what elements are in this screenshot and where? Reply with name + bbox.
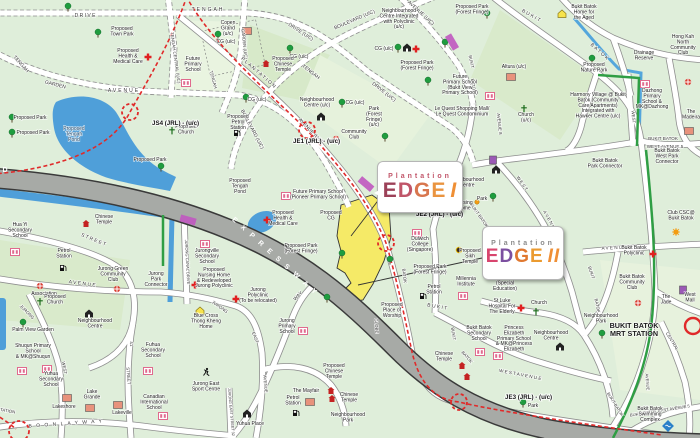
poi-label: ProposedPlace ofWorship <box>381 302 403 319</box>
poi-label: Proposed Park(Forest Fringe) <box>455 4 489 15</box>
poi-label: MillenniaInstitute <box>456 276 476 287</box>
poi-label: ProposedChineseTemple <box>272 56 294 73</box>
edge2-suffix: II <box>548 247 561 266</box>
poi-label: Bukit BatokPark Connector <box>588 158 623 169</box>
school-icon <box>299 328 308 335</box>
plantation-edge-2-callout: Plantation EDGE II <box>482 226 564 280</box>
poi-label: ChineseTemple <box>340 392 359 403</box>
poi-label: Park <box>477 196 488 202</box>
poi-label: Bukit BatokPolyclinic <box>621 245 647 256</box>
poi-label: Bukit BatokWest ParkConnector <box>654 148 680 165</box>
road-label: AVENUE <box>108 88 140 94</box>
poi-label: ProposedNature Park <box>581 62 608 73</box>
school-icon <box>159 413 168 420</box>
poi-label: WestMall <box>684 292 696 303</box>
salmon-icon <box>63 395 72 402</box>
school-icon <box>486 93 495 100</box>
poi-label: CG (u/c) <box>346 100 365 106</box>
poi-label: Bukit BatokHome forthe Aged <box>571 4 597 21</box>
jrl-station-label: JE1 (JRL) - (u/c) <box>293 138 340 145</box>
school-icon <box>11 249 20 256</box>
school-icon <box>641 81 650 88</box>
poi-label: ChineseTemple <box>95 214 114 225</box>
poi-label: CG (u/c) <box>375 46 394 52</box>
poi-label: Bukit BatokSwimmingComplex <box>637 406 663 423</box>
poi-label: D <box>2 167 7 174</box>
poi-label: PetrolStation <box>426 284 442 295</box>
edge1-suffix: I <box>450 180 457 201</box>
school-icon <box>476 349 485 356</box>
poi-label: Proposed Park(Forest Fringe) <box>284 243 318 254</box>
cc-icon <box>114 286 120 292</box>
poi-label: Proposed Park(Forest Fringe) <box>400 60 434 71</box>
poi-label: Church <box>531 300 547 306</box>
poi-label: Lakeville <box>112 410 132 416</box>
poi-label: DrainageReserve <box>634 50 655 61</box>
poi-label: Proposed Park <box>133 157 167 163</box>
salmon-icon <box>86 405 95 412</box>
map-canvas: D R I V ETENGAHDRIVE (U/C)TENGAHDRIVE (U… <box>0 0 700 438</box>
cc-icon <box>37 283 43 289</box>
poi-label: Le Quest Shopping Mall/Le Quest Condomin… <box>435 106 490 117</box>
edge2-logo-text: EDGE II <box>486 247 560 266</box>
sun-icon <box>672 228 680 236</box>
poi-label: ProposedChurch <box>44 294 66 305</box>
poi-label: Lakeshore <box>52 404 76 410</box>
poi-label: Yuhua Place <box>236 421 264 427</box>
school-icon <box>18 368 27 375</box>
poi-label: Proposed Park <box>13 115 47 121</box>
cc-icon <box>635 300 641 306</box>
poi-label: TheJade <box>661 294 672 305</box>
edge1-word: EDGE <box>383 180 447 201</box>
plantation-edge-location-map: D R I V ETENGAHDRIVE (U/C)TENGAHDRIVE (U… <box>0 0 700 438</box>
poi-label: Jurong EastSport Centre <box>192 381 221 392</box>
poi-label: Future Primary School(Pioneer Primary Sc… <box>290 189 346 200</box>
poi-label: Palm View Garden <box>12 327 54 333</box>
road-label: BUKIT BATOK <box>648 136 679 141</box>
poi-label: ProposedTown Park <box>110 26 134 37</box>
poi-label: PetrolStation <box>56 248 72 259</box>
school-icon <box>201 241 210 248</box>
poi-label: BUKIT BATOKMRT STATION <box>610 321 660 338</box>
purple-icon <box>490 156 497 164</box>
poi-label: CG (u/c) <box>217 39 236 45</box>
school-icon <box>144 368 153 375</box>
edge2-word: EDGE <box>486 247 544 266</box>
edge1-logo-text: EDGE I <box>383 180 457 201</box>
salmon-icon <box>114 402 123 409</box>
poi-label: Club CSC@Bukit Batok <box>667 210 694 221</box>
school-icon <box>494 353 503 360</box>
poi-label: CG (u/c) <box>248 97 267 103</box>
jrl-station-label: JE3 (JRL) - (u/c) <box>505 394 552 401</box>
salmon-icon <box>685 128 694 135</box>
poi-label: The Mayfair <box>293 388 320 394</box>
poi-label: FuturePrimarySchool <box>184 56 202 73</box>
school-icon <box>459 293 468 300</box>
cc-icon <box>685 79 691 85</box>
jurong-lake-edge <box>0 298 6 350</box>
poi-label: Altura (u/c) <box>502 64 527 70</box>
poi-label: NeighbourhoodCentre (u/c) <box>300 97 334 108</box>
jrl-station-label: JS4 (JRL) - (u/c) <box>152 120 199 127</box>
plantation-edge-1-callout: Plantation EDGE I <box>377 161 463 213</box>
road-label: TENGAH <box>192 7 225 13</box>
poi-label: Park <box>528 403 539 409</box>
school-icon <box>182 80 191 87</box>
poi-label: PetrolStation <box>285 395 301 406</box>
poi-label: JurongPrimarySchool <box>278 318 296 335</box>
poi-label: ProposedChineseTemple <box>323 363 345 380</box>
salmon-icon <box>507 74 516 81</box>
road-label: D R I V E <box>75 13 97 19</box>
salmon-icon <box>306 399 315 406</box>
poi-label: Proposed Park(Forest Fringe) <box>413 264 447 275</box>
jurong-canal <box>170 215 172 302</box>
poi-label: ChineseTemple <box>435 351 454 362</box>
poi-label: Proposed Park <box>16 130 50 136</box>
